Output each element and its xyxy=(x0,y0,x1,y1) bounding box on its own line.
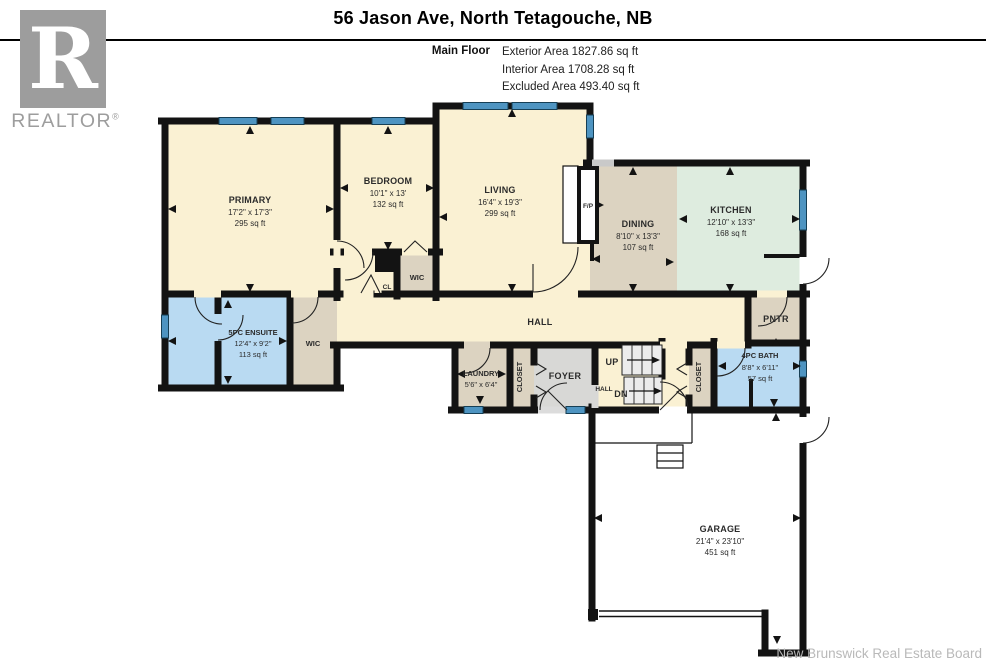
realtor-logo-r: R xyxy=(28,10,98,108)
svg-text:8'10" x 13'3": 8'10" x 13'3" xyxy=(616,232,660,241)
window-kitchen xyxy=(800,190,807,230)
window-laundry xyxy=(464,407,483,414)
patio-door xyxy=(592,160,614,167)
label-cl: CL xyxy=(383,284,392,291)
page-title: 56 Jason Ave, North Tetagouche, NB xyxy=(0,8,986,29)
svg-text:17'2" x 17'3": 17'2" x 17'3" xyxy=(228,208,272,217)
window-bedroom xyxy=(372,118,405,125)
floorplan-page: R REALTOR® 56 Jason Ave, North Tetagouch… xyxy=(0,0,986,664)
floor-label: Main Floor xyxy=(408,44,490,97)
label-closet1: CLOSET xyxy=(515,361,524,392)
stairs xyxy=(622,345,662,404)
label-closet2: CLOSET xyxy=(694,361,703,392)
svg-text:113 sq ft: 113 sq ft xyxy=(239,350,268,359)
svg-text:5'6" x 6'4": 5'6" x 6'4" xyxy=(465,380,498,389)
svg-text:LIVING: LIVING xyxy=(484,185,515,195)
svg-text:12'10" x 13'3": 12'10" x 13'3" xyxy=(707,218,755,227)
area-summary: Main Floor Exterior Area 1827.86 sq ft I… xyxy=(408,44,639,97)
svg-text:107 sq ft: 107 sq ft xyxy=(623,243,654,252)
svg-text:10'1" x 13': 10'1" x 13' xyxy=(370,189,407,198)
exterior-area: Exterior Area 1827.86 sq ft xyxy=(502,44,639,62)
realtor-wordmark: REALTOR® xyxy=(10,110,120,133)
label-hall-small: HALL xyxy=(595,386,612,393)
svg-text:PRIMARY: PRIMARY xyxy=(229,195,272,205)
interior-area: Interior Area 1708.28 sq ft xyxy=(502,62,639,80)
svg-text:299 sq ft: 299 sq ft xyxy=(485,209,516,218)
svg-text:GARAGE: GARAGE xyxy=(700,524,741,534)
svg-text:8'8" x 6'11": 8'8" x 6'11" xyxy=(742,363,779,372)
window-living-1 xyxy=(463,103,508,110)
window-bath xyxy=(800,361,807,377)
realtor-logo: R REALTOR® xyxy=(20,10,120,133)
label-pantry: PNTR xyxy=(763,314,789,324)
board-credit: New Brunswick Real Estate Board xyxy=(776,646,982,661)
svg-text:5PC ENSUITE: 5PC ENSUITE xyxy=(228,328,277,337)
svg-text:57 sq ft: 57 sq ft xyxy=(748,374,774,383)
svg-text:4PC BATH: 4PC BATH xyxy=(742,351,779,360)
floor-plan-drawing: PRIMARY 17'2" x 17'3" 295 sq ft BEDROOM … xyxy=(0,0,986,664)
svg-text:132 sq ft: 132 sq ft xyxy=(373,200,404,209)
svg-text:16'4" x 19'3": 16'4" x 19'3" xyxy=(478,198,522,207)
svg-text:168 sq ft: 168 sq ft xyxy=(716,229,747,238)
label-up: UP xyxy=(605,357,618,367)
label-hall: HALL xyxy=(527,317,552,327)
svg-text:LAUNDRY: LAUNDRY xyxy=(463,369,499,378)
garage-steps xyxy=(657,445,683,468)
svg-text:295 sq ft: 295 sq ft xyxy=(235,219,266,228)
window-living-2 xyxy=(512,103,557,110)
window-ensuite xyxy=(162,315,169,338)
label-foyer: FOYER xyxy=(549,371,582,381)
label-down: DN xyxy=(614,389,628,399)
area-stats: Exterior Area 1827.86 sq ft Interior Are… xyxy=(502,44,639,97)
label-wic-bedroom: WIC xyxy=(410,273,425,282)
window-foyer-sidelite xyxy=(566,407,585,414)
svg-text:BEDROOM: BEDROOM xyxy=(364,176,412,186)
window-living-side xyxy=(587,115,594,138)
svg-text:DINING: DINING xyxy=(622,219,655,229)
label-fireplace: F/P xyxy=(583,203,594,210)
window-primary-2 xyxy=(271,118,304,125)
chimney xyxy=(375,252,397,272)
svg-text:21'4" x 23'10": 21'4" x 23'10" xyxy=(696,537,744,546)
excluded-area: Excluded Area 493.40 sq ft xyxy=(502,79,639,97)
realtor-logo-box: R xyxy=(20,10,106,108)
svg-text:KITCHEN: KITCHEN xyxy=(710,205,751,215)
window-primary-1 xyxy=(219,118,257,125)
room-bedroom-floor xyxy=(337,121,436,252)
label-wic-ensuite: WIC xyxy=(306,339,321,348)
svg-text:12'4" x 9'2": 12'4" x 9'2" xyxy=(235,339,272,348)
svg-text:451 sq ft: 451 sq ft xyxy=(705,548,736,557)
